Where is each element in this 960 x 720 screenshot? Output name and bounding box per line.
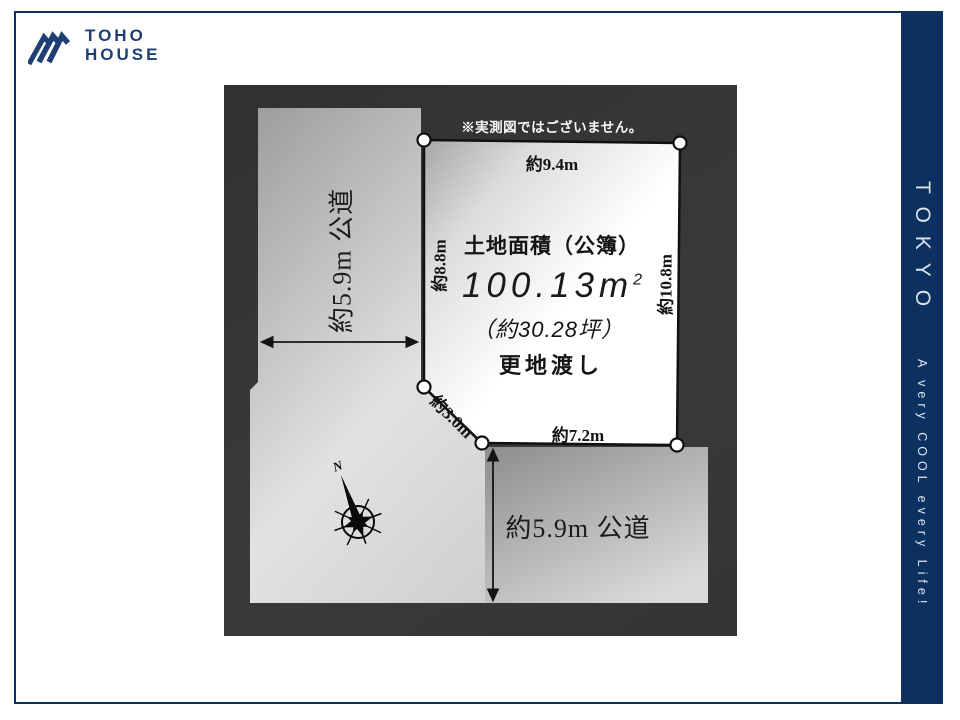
- land-area-number: 100.13: [462, 266, 599, 305]
- dim-top: 約9.4m: [502, 150, 602, 175]
- bottom-road-label: 約5.9m 公道: [478, 508, 678, 545]
- brand-logo-text: TOHO HOUSE: [85, 26, 160, 64]
- side-band-tagline: A very COOL every Life!: [915, 359, 929, 608]
- land-area-value: 100.13m2: [427, 266, 677, 306]
- left-road-label: 約5.9m 公道: [322, 161, 359, 361]
- side-band-title: TOKYO: [910, 181, 934, 319]
- land-area-title: 土地面積（公簿）: [427, 230, 677, 260]
- delivery-condition: 更地渡し: [426, 348, 676, 380]
- land-area-unit-sup: 2: [633, 271, 642, 288]
- plot-corner-marker: [671, 439, 684, 452]
- land-area-unit: m: [599, 266, 633, 305]
- plot-diagram-panel: N ※実測図ではございません。 約9.4m 約8.8m 約10.8m 約3.0m…: [224, 85, 737, 636]
- toho-house-roof-icon: [28, 24, 76, 66]
- dim-bottom: 約7.2m: [530, 421, 626, 446]
- disclaimer-note: ※実測図ではございません。: [424, 116, 680, 136]
- brand-name-line1: TOHO: [85, 26, 160, 45]
- side-band: TOKYO A very COOL every Life!: [901, 11, 943, 704]
- brand-logo: TOHO HOUSE: [28, 24, 160, 66]
- land-area-tsubo: （約30.28坪）: [423, 312, 673, 344]
- flyer-page: TOHO HOUSE TOKYO A very COOL every Life!: [0, 0, 960, 720]
- plot-corner-marker: [674, 137, 687, 150]
- brand-name-line2: HOUSE: [85, 45, 160, 64]
